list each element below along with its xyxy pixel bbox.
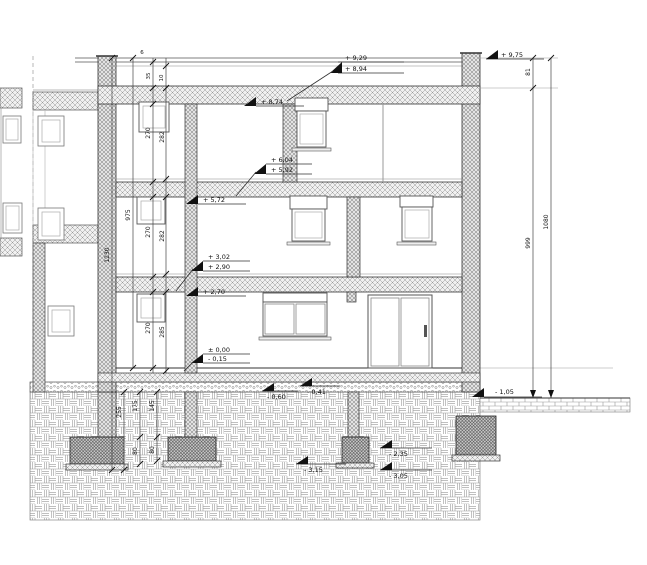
- elevation-label-floor-1-fin: + 3,02: [208, 253, 230, 261]
- window-ground-box: [263, 293, 327, 302]
- window-mid-right-frame: [405, 210, 429, 238]
- dim-label-roof-t2: 35: [146, 72, 152, 79]
- window-top-floor-frame: [300, 114, 323, 144]
- building-section-drawing: 1230 975 270 270 270 282 282 285 255 175…: [0, 0, 647, 565]
- neighbor-building: [33, 56, 98, 392]
- elevation-label-footing-bottom: - 3,05: [389, 472, 408, 480]
- dim-label-footing-h2: 80: [149, 446, 156, 454]
- elevation-label-footing-base-left: - 3,15: [304, 466, 323, 474]
- inner-footing: [168, 437, 216, 461]
- elevation-label-subbase-a: - 0,60: [267, 393, 286, 401]
- left-foundation-wall: [98, 392, 116, 437]
- dim-label-foundation-total: 255: [116, 406, 123, 418]
- elevation-label-parapet-right: + 9,75: [501, 51, 523, 59]
- dim-label-storey-top: 282: [159, 131, 166, 143]
- dim-label-parapet: 81: [525, 68, 532, 76]
- bay-window-mid-frame: [141, 201, 161, 220]
- elevation-label-floor-2-raw: + 5,92: [271, 166, 293, 174]
- dim-label-shell: 975: [125, 209, 132, 221]
- center-footing: [342, 437, 369, 463]
- neighbor-wall: [33, 243, 45, 392]
- elevation-label-ground-floor: ± 0,00: [208, 346, 230, 354]
- terrain-strip-right: [480, 398, 630, 412]
- elevation-label-subbase-b: - 0,41: [307, 388, 326, 396]
- right-footing: [456, 416, 496, 455]
- elevation-label-ceiling-0: + 2,70: [203, 288, 225, 296]
- section-drawing-canvas: 1230 975 270 270 270 282 282 285 255 175…: [0, 0, 647, 565]
- neighbor-window-1-frame: [42, 120, 60, 142]
- window-mid-left-sill: [287, 242, 330, 245]
- door-handle: [424, 325, 427, 337]
- gravel-subbase: [30, 382, 480, 392]
- dim-label-footing-h1: 80: [132, 447, 139, 455]
- partition-stub-ground: [347, 292, 356, 302]
- dim-label-roof-t1: 6: [140, 50, 144, 56]
- elevation-label-floor-2-fin: + 6,04: [271, 156, 293, 164]
- window-ground-pane-left: [265, 304, 294, 334]
- bay-window-ground-frame: [141, 298, 161, 318]
- right-footing-plate: [452, 455, 500, 461]
- elevation-label-roof-top: + 9,29: [345, 54, 367, 62]
- elevation-label-roof-slab-top: + 8,94: [345, 65, 367, 73]
- dim-arrow-1080: [548, 390, 554, 398]
- interior-wall-left-bay: [185, 104, 197, 373]
- dim-label-storey-mid: 282: [159, 230, 166, 242]
- window-top-floor-sill: [292, 148, 331, 151]
- neighbor-roof-slab: [33, 92, 98, 110]
- window-mid-left-frame: [295, 212, 322, 238]
- neighbor-window-3-frame: [52, 310, 70, 332]
- far-window-1-frame: [6, 119, 18, 140]
- dim-label-foundation-b: 145: [149, 400, 156, 412]
- window-mid-right-box: [400, 196, 433, 207]
- dim-label-room-ground: 270: [145, 322, 152, 334]
- dim-label-room-top: 270: [145, 127, 152, 139]
- elevation-label-ceiling-2: + 8,74: [261, 98, 283, 106]
- center-foundation-column: [348, 392, 359, 437]
- door-leaf-left: [371, 298, 399, 366]
- inner-foundation-wall: [185, 392, 197, 437]
- left-exterior-wall: [98, 56, 116, 392]
- dim-label-above-terrain: 999: [525, 237, 532, 249]
- ground-slab: [98, 373, 480, 382]
- elevation-label-slab-2-top: + 5,72: [203, 196, 225, 204]
- bay-window-top-frame: [143, 106, 165, 128]
- partition-mid-floor: [347, 197, 360, 277]
- far-building-fragment: [0, 88, 22, 256]
- window-mid-right-sill: [397, 242, 436, 245]
- far-roof-slab: [0, 88, 22, 108]
- far-window-2-frame: [6, 206, 19, 230]
- dim-label-foundation-a: 175: [132, 400, 139, 412]
- dim-label-total: 1230: [104, 247, 111, 262]
- elevation-label-ground-raw: - 0,15: [208, 355, 227, 363]
- left-footing-plate: [66, 464, 128, 470]
- window-mid-left-box: [290, 196, 327, 209]
- window-top-floor-box: [295, 98, 328, 111]
- inner-footing-plate: [163, 461, 221, 467]
- window-ground-sill: [259, 337, 331, 340]
- neighbor-window-2-frame: [42, 212, 60, 236]
- dim-label-storey-ground: 285: [159, 326, 166, 338]
- elevation-label-terrain-right: - 1,05: [495, 388, 514, 396]
- elevation-label-footing-top: - 2,35: [389, 450, 408, 458]
- dim-label-roof-t3: 10: [159, 74, 165, 81]
- far-floor-slab: [0, 238, 22, 256]
- dim-label-room-mid: 270: [145, 226, 152, 238]
- elevation-label-floor-1-raw: + 2,90: [208, 263, 230, 271]
- dim-label-overall: 1080: [543, 214, 550, 229]
- window-ground-pane-right: [296, 304, 325, 334]
- left-footing: [70, 437, 124, 464]
